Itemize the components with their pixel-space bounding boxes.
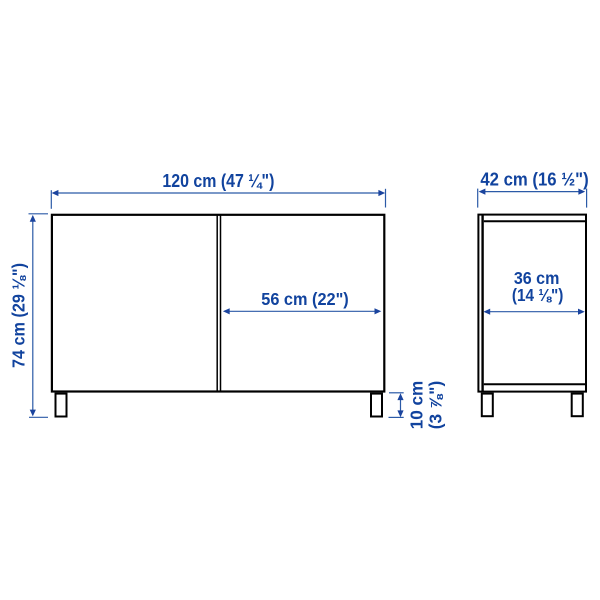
svg-text:(14 ⅛"): (14 ⅛"): [512, 285, 564, 305]
svg-text:74 cm (29 ⅛"): 74 cm (29 ⅛"): [9, 263, 29, 368]
svg-text:120 cm (47 ¼"): 120 cm (47 ¼"): [162, 170, 274, 191]
svg-text:42 cm (16 ½"): 42 cm (16 ½"): [480, 169, 588, 190]
svg-text:(3 ⅞"): (3 ⅞"): [426, 381, 446, 430]
svg-text:56 cm (22"): 56 cm (22"): [261, 289, 349, 309]
svg-text:10 cm: 10 cm: [407, 381, 427, 430]
